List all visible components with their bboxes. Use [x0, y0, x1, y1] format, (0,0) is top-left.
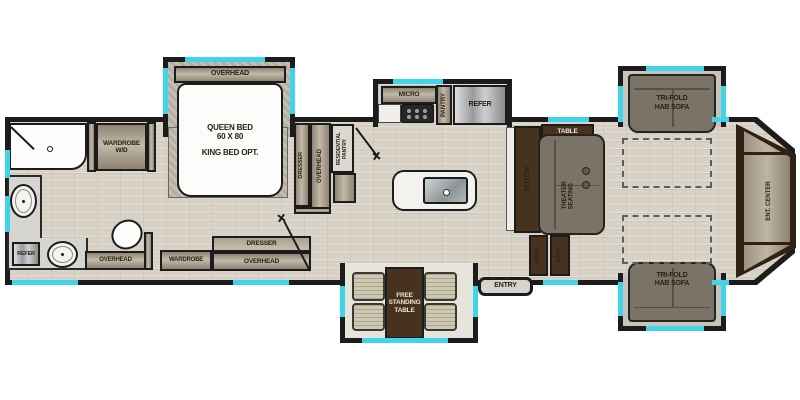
bedroom-overhead-tall: OVERHEAD [310, 123, 331, 210]
bath-sink [10, 184, 37, 218]
bedroom-overhead-cabinet: OVERHEAD [174, 66, 286, 83]
kitchen-counter [378, 104, 401, 123]
kitchen-slide-window [393, 79, 443, 84]
residential-pantry-label-1: RESIDENTIAL [337, 132, 342, 165]
window-left-wall-upper [5, 150, 10, 178]
rv-floorplan: OVERHEAD QUEEN BED 60 X 80 KING BED OPT.… [0, 0, 800, 400]
bedroom-overhead-strip: OVERHEAD [212, 252, 311, 271]
window-top-rear [712, 117, 729, 122]
dinette-chair [352, 272, 385, 301]
dinette-chair [424, 272, 457, 301]
kitchen-refrigerator: REFER [453, 85, 507, 125]
sofa-bottom-window-bottom [646, 326, 704, 331]
queen-bed: QUEEN BED 60 X 80 KING BED OPT. [177, 83, 283, 197]
bath-overhead-label: OVERHEAD [99, 257, 131, 264]
sofa-bottom-label-2: HAB SOFA [655, 280, 690, 288]
entertainment-center: ENT. CENTER [736, 124, 796, 278]
queen-bed-label-1: QUEEN BED [207, 123, 253, 132]
range-cooktop [401, 104, 434, 123]
tri-fold-sofa-top: TRI-FOLD HAB SOFA [628, 74, 716, 133]
dinette-chair [352, 303, 385, 331]
bedroom-wardrobe-label: WARDROBE [169, 257, 203, 264]
pantry-door-stop [372, 151, 381, 160]
bedroom-wardrobe: WARDROBE [160, 250, 212, 271]
slide-travel-outline-top [622, 138, 712, 188]
island-sink [423, 177, 468, 204]
bedroom-dresser-tall-label: DRESSER [299, 152, 305, 179]
theater-seating: THEATER SEATING [538, 134, 605, 235]
microwave-label: MICRO [399, 91, 420, 98]
shower [9, 123, 87, 170]
bedroom-overhead-strip-label: OVERHEAD [244, 258, 279, 265]
window-bottom-bedroom [233, 280, 289, 285]
residential-pantry-label-2: PANTRY [343, 139, 348, 159]
dinette-label-1: FREE [396, 292, 413, 299]
queen-bed-label-2: 60 X 80 [217, 132, 243, 141]
window-bottom-bath [12, 280, 78, 285]
wardrobe-wd-label-2: W/D [115, 147, 127, 154]
sofa-bottom-window-right [721, 282, 726, 316]
sofa-top-label-1: TRI-FOLD [656, 95, 687, 103]
step-label-2: STEP [557, 248, 563, 262]
bedroom-overhead-tall-label: OVERHEAD [317, 149, 323, 183]
wardrobe-washer-dryer: WARDROBE W/D [96, 123, 147, 171]
cup-holder [582, 181, 590, 189]
sofa-bottom-window-left [618, 282, 623, 316]
bath-overhead-cabinet: OVERHEAD [85, 251, 146, 270]
pantry-cabinet: PANTRY [436, 85, 452, 125]
bedroom-slide-window-top [185, 57, 265, 62]
entry-step-1: STEP [529, 235, 548, 276]
tri-fold-sofa-bottom: TRI-FOLD HAB SOFA [628, 262, 716, 322]
microwave-cabinet: MICRO [381, 86, 437, 104]
window-bottom-entry [543, 280, 578, 285]
bedroom-door-stop [277, 213, 286, 222]
ent-center-label: ENT. CENTER [766, 181, 772, 220]
hutch: HUTCH [514, 126, 541, 233]
bath-sink-second [47, 241, 78, 268]
bath-refrigerator: REFER [12, 242, 40, 266]
dinette-window-bottom [362, 338, 448, 343]
hutch-label: HUTCH [524, 167, 531, 192]
bedroom-slide-window-left [163, 68, 168, 114]
island-faucet [443, 189, 450, 196]
step-label-1: STEP [536, 248, 542, 262]
window-left-wall-lower [5, 196, 10, 232]
free-standing-table: FREE STANDING TABLE [385, 267, 424, 339]
sofa-top-window-top [646, 66, 704, 71]
bedroom-slide-window-right [290, 68, 295, 114]
bedroom-dresser-tall: DRESSER [294, 123, 310, 207]
wardrobe-wd-label-1: WARDROBE [103, 140, 140, 147]
dinette-label-2: STANDING [389, 299, 421, 306]
shower-drain [47, 146, 53, 152]
bedroom-dresser-label: DRESSER [246, 240, 276, 247]
bath-refrigerator-label: REFER [17, 251, 35, 257]
queen-bed-label-3: KING BED OPT. [202, 148, 259, 157]
cabinet-end-panel [294, 207, 331, 214]
dinette-chair [424, 303, 457, 331]
dinette-label-3: TABLE [394, 307, 414, 314]
bath-end-pillar [144, 232, 153, 270]
pantry-label: PANTRY [441, 93, 447, 117]
entry-door: ENTRY [478, 277, 533, 296]
kitchen-refrigerator-label: REFER [469, 101, 492, 109]
sofa-top-label-2: HAB SOFA [655, 104, 690, 112]
sofa-bottom-label-1: TRI-FOLD [656, 272, 687, 280]
theater-seating-label: THEATER SEATING [562, 160, 575, 209]
bedroom-overhead-label: OVERHEAD [211, 70, 249, 78]
cup-holder [582, 167, 590, 175]
bath-wall-pillar [147, 122, 156, 172]
pantry-lower-cabinet [333, 173, 356, 203]
bath-wall-pillar [87, 122, 96, 172]
residential-pantry: RESIDENTIAL PANTRY [331, 124, 354, 173]
window-bottom-rear [712, 280, 729, 285]
ent-center-divider [744, 152, 792, 155]
entry-step-2: STEP [550, 235, 570, 276]
dinette-window-left [340, 286, 345, 317]
slide-travel-outline-bottom [622, 215, 712, 264]
entry-label: ENTRY [494, 282, 516, 290]
window-top-table [548, 117, 589, 122]
ent-center-divider [744, 242, 792, 245]
sofa-top-window-left [618, 86, 623, 122]
